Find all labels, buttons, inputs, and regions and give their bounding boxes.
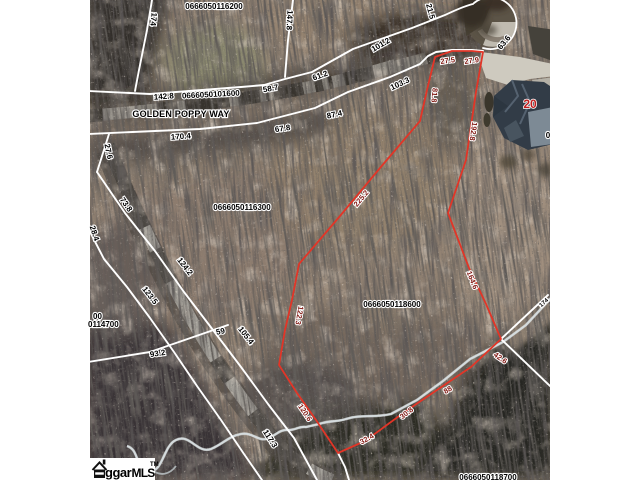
svg-text:GOLDEN POPPY WAY: GOLDEN POPPY WAY (132, 109, 229, 119)
svg-text:81.8: 81.8 (429, 88, 439, 103)
svg-text:0: 0 (546, 131, 551, 140)
svg-text:147.8: 147.8 (284, 10, 294, 31)
svg-text:0666050118600: 0666050118600 (363, 300, 421, 309)
svg-text:0666050116200: 0666050116200 (185, 2, 243, 11)
svg-text:MLS: MLS (132, 466, 156, 480)
svg-text:170.4: 170.4 (171, 131, 192, 141)
svg-text:142.8: 142.8 (154, 91, 175, 101)
svg-text:0666050118700: 0666050118700 (459, 473, 517, 480)
svg-text:0114700: 0114700 (88, 320, 119, 329)
svg-text:ggar: ggar (105, 465, 132, 480)
svg-text:20: 20 (523, 97, 537, 111)
svg-text:TM: TM (150, 462, 159, 468)
svg-text:0666050116300: 0666050116300 (213, 203, 271, 212)
svg-text:174: 174 (148, 12, 158, 27)
